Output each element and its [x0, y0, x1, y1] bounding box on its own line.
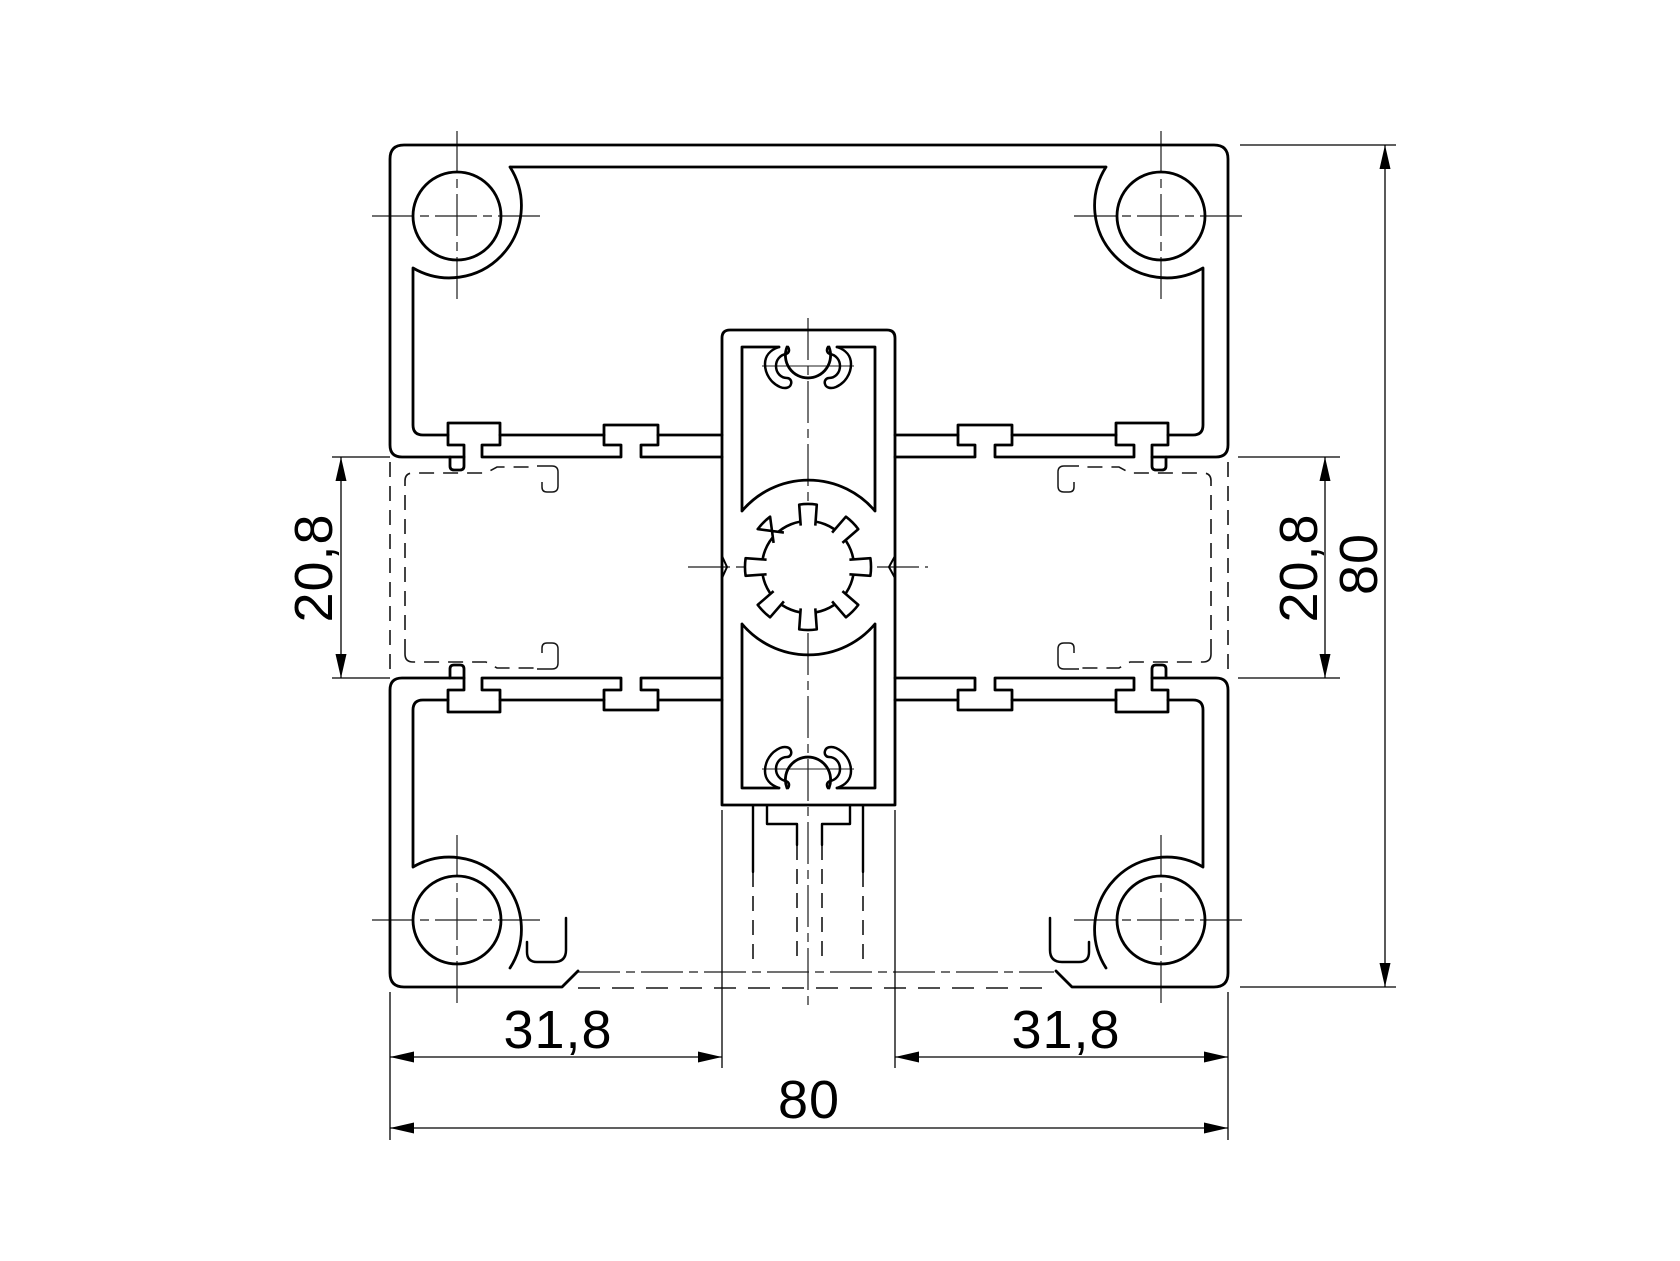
technical-drawing-page: 20,8 20,8 80 31,8 31,8 80 — [0, 0, 1680, 1261]
right-arm-phantom-bottom — [1082, 654, 1211, 668]
dimension-lines — [332, 145, 1396, 1140]
boss-crosshair-bottom-right — [1074, 835, 1244, 1005]
dim-label-slot-left: 20,8 — [284, 513, 344, 622]
dim-label-bottom-left: 31,8 — [503, 1000, 612, 1060]
dim-label-bottom-right: 31,8 — [1011, 1000, 1120, 1060]
bottom-left-lip — [527, 918, 566, 962]
right-arm-phantom-top — [1082, 467, 1211, 654]
boss-crosshair-top-left — [372, 131, 542, 301]
boss-crosshair-bottom-left — [372, 835, 542, 1005]
bottom-flange-outer-right — [895, 678, 1228, 987]
bottom-right-lip — [1050, 918, 1089, 962]
profile-drawing-canvas: 20,8 20,8 80 31,8 31,8 80 — [0, 0, 1680, 1261]
left-arm-phantom-bottom — [405, 654, 534, 668]
center-spline-hole — [745, 504, 871, 630]
dimension-arrows — [336, 145, 1391, 1134]
bottom-flange-outer-left — [390, 678, 722, 987]
boss-crosshair-top-right — [1074, 131, 1244, 301]
dim-label-width: 80 — [778, 1070, 840, 1130]
dim-label-height: 80 — [1329, 533, 1389, 595]
dim-label-slot-right: 20,8 — [1269, 513, 1329, 622]
top-flange-outer — [390, 145, 1228, 457]
left-arm-phantom-top — [405, 467, 534, 654]
